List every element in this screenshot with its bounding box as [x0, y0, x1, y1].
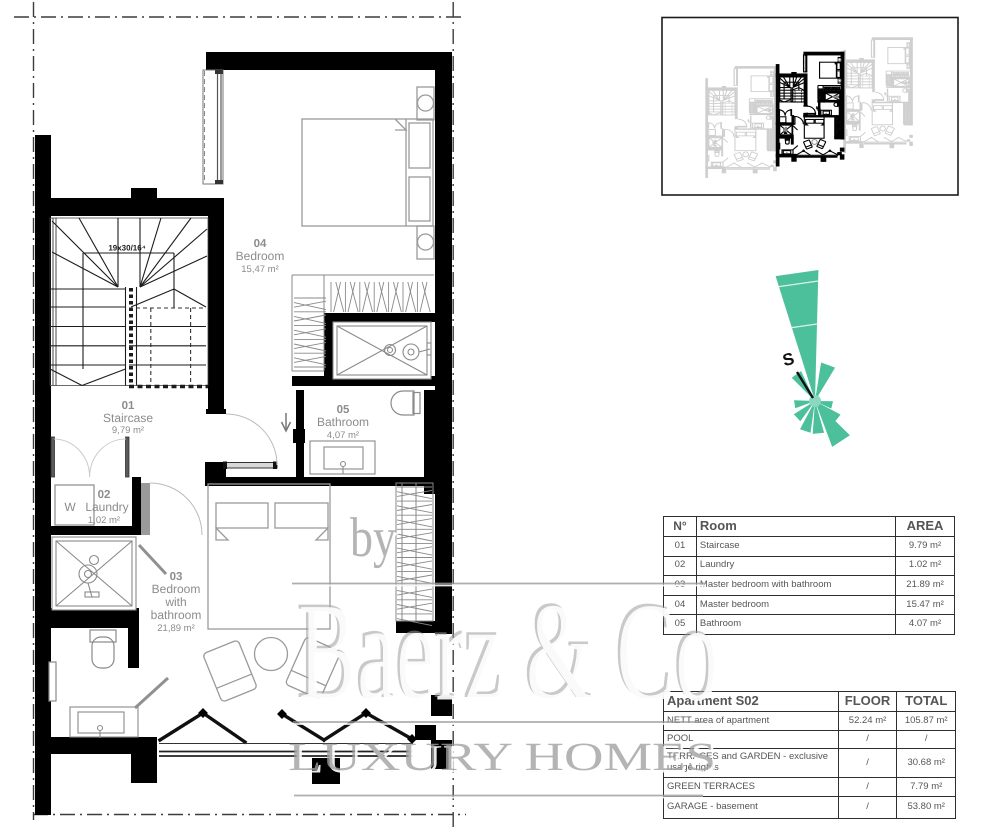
svg-text:bathroom: bathroom — [151, 608, 202, 622]
svg-text:Bedroom: Bedroom — [236, 249, 285, 263]
svg-text:Bathroom: Bathroom — [317, 415, 369, 429]
svg-text:21,89 m²: 21,89 m² — [157, 623, 195, 634]
svg-text:19x30/16⁴: 19x30/16⁴ — [108, 244, 145, 253]
svg-text:15,47 m²: 15,47 m² — [241, 264, 279, 275]
svg-text:Bedroom: Bedroom — [152, 582, 201, 596]
svg-text:S: S — [781, 349, 797, 370]
svg-text:W: W — [64, 500, 76, 514]
svg-text:9,79 m²: 9,79 m² — [112, 425, 144, 436]
svg-text:4,07 m²: 4,07 m² — [327, 430, 359, 441]
svg-text:1,02 m²: 1,02 m² — [88, 515, 120, 526]
svg-text:Staircase: Staircase — [103, 411, 153, 425]
svg-text:with: with — [164, 595, 186, 609]
svg-text:Laundry: Laundry — [85, 500, 128, 514]
